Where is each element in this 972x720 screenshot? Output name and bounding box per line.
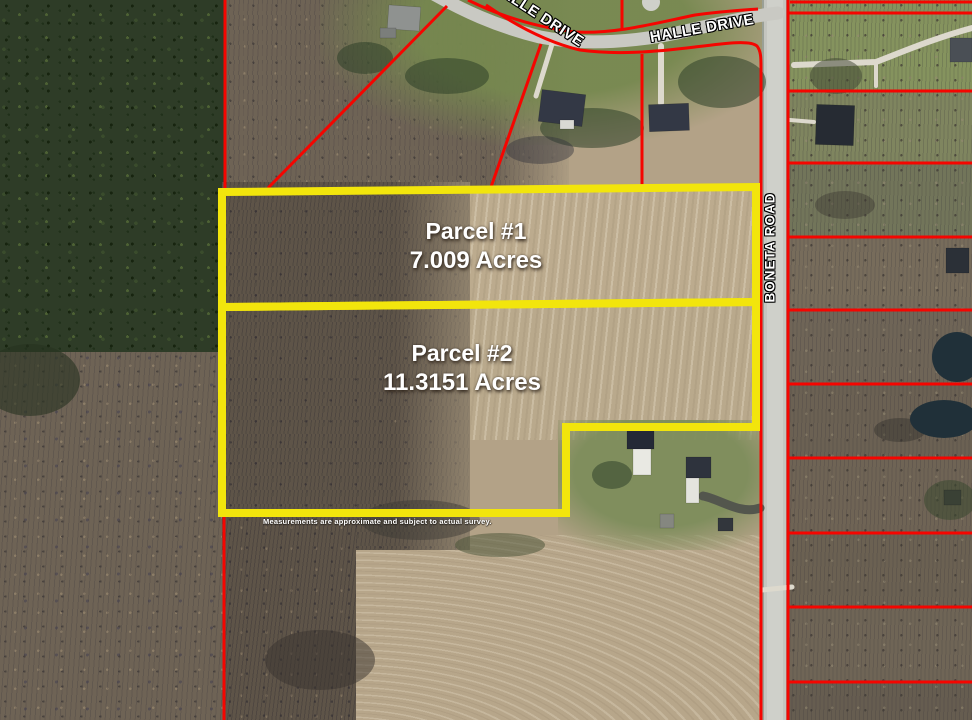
house	[560, 120, 574, 129]
white-barn	[633, 449, 651, 475]
house	[649, 103, 690, 131]
survey-disclaimer: Measurements are approximate and subject…	[263, 517, 492, 526]
farm-house	[686, 457, 711, 478]
parcel-2-outline	[222, 302, 756, 513]
house	[815, 104, 854, 145]
farm-driveway	[703, 496, 760, 510]
parcel-2-label: Parcel #2 11.3151 Acres	[312, 338, 612, 398]
aerial-parcel-map: HALLE DRIVE HALLE DRIVE BONETA ROAD Parc…	[0, 0, 972, 720]
house	[387, 5, 421, 31]
parcel-2-acreage: 11.3151 Acres	[312, 368, 612, 398]
building	[946, 248, 969, 273]
parcel-2-name: Parcel #2	[312, 338, 612, 368]
parcel-1-name: Parcel #1	[326, 216, 626, 246]
house	[380, 28, 396, 38]
shed	[660, 514, 674, 528]
parcel-1-label: Parcel #1 7.009 Acres	[326, 216, 626, 276]
barn	[627, 430, 654, 449]
building	[944, 490, 961, 505]
pond-north	[932, 332, 972, 382]
parcel-1-acreage: 7.009 Acres	[326, 246, 626, 276]
boundary-line	[268, 6, 447, 188]
building	[950, 38, 972, 62]
cul-de-sac	[642, 0, 660, 11]
boundary-line	[490, 44, 541, 190]
farm-house-wing	[686, 478, 699, 503]
shed	[718, 518, 733, 531]
boneta-road-label: BONETA ROAD	[763, 188, 778, 308]
